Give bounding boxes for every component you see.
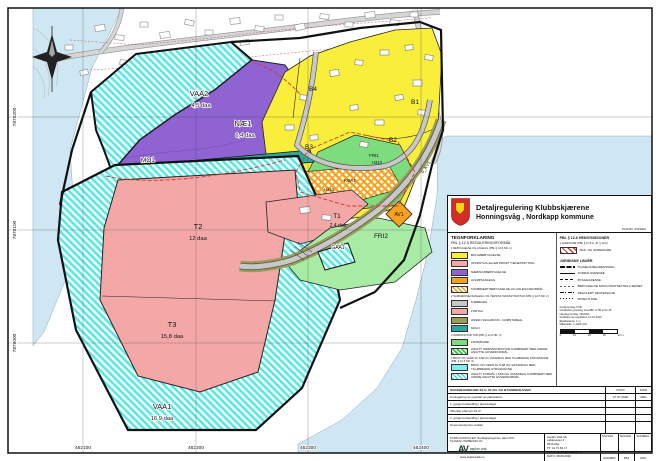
municipal-coat-of-arms (451, 198, 470, 226)
swatch-hazard (560, 247, 577, 254)
legend-col-left: TEGNFORKLARING PBL § 12-5 REGULERINGSFOR… (448, 233, 556, 386)
label-t3: T3 (168, 320, 177, 329)
process-step: 1. gangs behandling i planutvalget (448, 401, 605, 407)
line-centerline (560, 292, 575, 293)
scale-tick: 40 m (618, 334, 624, 337)
label-kba1: KBA1 (344, 178, 356, 183)
line-sightline (560, 298, 575, 299)
legend-item: BRUK OG VERN AV SJØ OG VASSDRAG MED TILH… (451, 364, 553, 371)
scale-bar-labels: 0 10 20 30 40 m (560, 334, 624, 337)
label-b3: B3 (305, 144, 313, 151)
title-block-header: Detaljregulering Klubbskjærene Honningsv… (448, 196, 651, 233)
legend-line-item: PLANENS BEGRENSNING (560, 265, 648, 269)
label-vaa2-area: 4,5 daa (191, 103, 211, 109)
legend-item: BOLIGBEBYGGELSE (451, 252, 553, 259)
legend-line-item: REGULERT SENTERLINJE (560, 291, 648, 295)
legend-group5-title: 5 BRUK OG VERN AV SJØ OG VASSDRAG MED TI… (451, 357, 553, 363)
cell-saksbeh: SAKSBEH ASO (634, 434, 651, 461)
label-nae1-area: 6,4 daa (235, 133, 255, 139)
faresone-title: 1 FARESONE (PBL § 11-8 A, JF. § 12-6) (560, 242, 648, 245)
legend: TEGNFORKLARING PBL § 12-5 REGULERINGSFOR… (448, 233, 651, 387)
legend-item-label: AVLØPSANLEGG (471, 279, 495, 282)
legend-item: KJØREVEG (451, 300, 553, 307)
process-sign (635, 408, 651, 414)
swatch-combined (451, 286, 468, 293)
process-sign: ABG (635, 394, 651, 400)
label-b2: B2 (389, 137, 397, 144)
legend-group3-title: 3 GRØNNSTRUKTUR (PBL § 12-5 NR. 3) (451, 334, 553, 337)
legend-item-label: BRUK OG VERN AV SJØ OG VASSDRAG MED TILH… (471, 364, 553, 370)
label-b4: B4 (309, 86, 317, 93)
label-t1: T1 (333, 213, 341, 220)
legend-item: ANGITT FORMÅL I SJØ OG VASSDRAG KOMBINER… (451, 373, 553, 380)
footer-address: Asplan Viak AS Løkkeveien 4 9510 Alta Tl… (544, 434, 600, 461)
label-t2: T2 (194, 222, 203, 231)
swatch-industry (451, 269, 468, 276)
swatch-sea (451, 364, 468, 371)
title-block-footer: FORSLAGSSTILLER: Nordkappregionen Havn I… (448, 433, 651, 461)
process-row: 1. gangs behandling i planutvalget (448, 400, 651, 407)
swatch-molo (451, 325, 468, 332)
process-date (605, 415, 635, 421)
legend-item: MOLO (451, 325, 553, 332)
process-table: SAKSBEHANDLING IFLG. PLAN- OG BYGNINGSLO… (448, 387, 651, 433)
legend-item-label: FORMÅLSGRENSE (578, 271, 605, 275)
scale-tick: 30 (603, 334, 606, 337)
scale-tick: 20 (588, 334, 591, 337)
process-row: Kommunestyrets vedtak: (448, 421, 651, 433)
legend-item-label: OFFENTLIG ELLER PRIVAT TJENESTEYTING (471, 262, 535, 265)
label-av1: AV1 (394, 212, 403, 218)
legend-item: NÆRINGSBEBYGGELSE (451, 269, 553, 276)
legend-subheading: PBL § 12-5 REGULERINGSFORMÅL (451, 241, 553, 245)
line-plan-boundary (560, 266, 575, 268)
swatch-residential (451, 252, 468, 259)
process-row: Kunngjøring av oppstart av planarbeid 07… (448, 393, 651, 400)
scale-tick: 10 (573, 334, 576, 337)
coord-y3: 7878000 (12, 333, 18, 352)
label-fri1-zone: H310 (372, 160, 383, 165)
label-b1: B1 (411, 99, 419, 106)
legend-heading: TEGNFORKLARING (451, 235, 553, 240)
legend-item-label: KJØREVEG (471, 301, 487, 304)
process-date (605, 401, 635, 407)
legend-item: ANNEN VEGGRUNN - GRØNTAREAL (451, 317, 553, 324)
process-heading: SAKSBEHANDLING IFLG. PLAN- OG BYGNINGSLO… (448, 387, 605, 393)
process-sign (635, 422, 651, 433)
legend-col-right: PBL § 12-6 HENSYNSSONER 1 FARESONE (PBL … (556, 233, 651, 386)
company-website: www.asplanviak.no (460, 455, 542, 459)
hensynssoner-heading: PBL § 12-6 HENSYNSSONER (560, 236, 648, 240)
juridiske-linjer-heading: JURIDISKE LINJER (560, 259, 648, 263)
coord-x2: 462200 (188, 445, 204, 451)
label-t3-area: 15,8 daa (161, 334, 184, 340)
legend-item-label: RAS- OG SKREDFARE (580, 249, 612, 252)
swatch-verge (451, 317, 468, 324)
scale-bar (560, 329, 618, 334)
proposer-name: Nordkappregionen Havn IKS (477, 436, 514, 440)
swatch-sea-combined (451, 373, 468, 380)
legend-item: FRIOMRÅDE (451, 339, 553, 346)
coord-x1: 462100 (75, 445, 91, 451)
legend-item-label: REGULERT SENTERLINJE (578, 291, 615, 295)
legend-item-label: MOLO (471, 327, 480, 330)
legend-item: OFFENTLIG ELLER PRIVAT TJENESTEYTING (451, 260, 553, 267)
line-building-removal (560, 286, 575, 287)
process-sign (635, 415, 651, 421)
legend-item: RAS- OG SKREDFARE (560, 247, 648, 254)
line-building-limit (560, 279, 575, 280)
swatch-sidewalk (451, 308, 468, 315)
basemap-line: Målestokk: 1:1000 (A1) (560, 323, 648, 327)
legend-item-label: ANNEN VEGGRUNN - GRØNTAREAL (471, 319, 523, 322)
label-vaa1-area: 16,9 daa (151, 416, 174, 422)
footer-proposer: FORSLAGSSTILLER: Nordkappregionen Havn I… (448, 434, 544, 461)
swatch-green-combined (451, 348, 468, 355)
cell-label: SAKSNR (602, 435, 617, 438)
process-date (605, 408, 635, 414)
legend-item-label: FRIOMRÅDE (471, 341, 489, 344)
cell-tegnnr: TEGNNR R01 (618, 434, 635, 461)
label-fri2: FRI2 (374, 233, 388, 240)
cell-value: 2019/862 (602, 456, 617, 460)
legend-item-label: ANGITT GRØNNSTRUKTUR KOMBINERT MED ANDRE… (471, 348, 553, 354)
legend-item-label: BEBYGGELSE SOM FORUTSETTES FJERNET (578, 284, 643, 288)
process-step: Kunngjøring av oppstart av planarbeid (448, 394, 605, 400)
line-purpose-boundary (560, 273, 575, 274)
swatch-service (451, 260, 468, 267)
legend-group1-title: 1 BEBYGGELSE OG ANLEGG (PBL § 12-5 NR. 1… (451, 247, 553, 250)
author-label: PLANEN UTARBEIDET AV: (450, 440, 542, 443)
process-col-date: DATO (605, 387, 635, 393)
process-step: 2. gangs behandling i planutvalget (448, 415, 605, 421)
process-col-sign: SIGN (635, 387, 651, 393)
legend-item: KOMBINERT BEBYGGELSE OG ANLEGGSFORMÅL (451, 286, 553, 293)
cell-label: TEGNNR (620, 435, 634, 438)
cell-saksnr: SAKSNR 2019/862 (601, 434, 618, 461)
legend-item-label: PLANENS BEGRENSNING (578, 265, 615, 269)
label-t2-area: 12 daa (189, 236, 208, 242)
coord-y1: 7878200 (12, 107, 18, 126)
legend-line-item: BEBYGGELSE SOM FORUTSETTES FJERNET (560, 284, 648, 288)
label-gaa1: GAA1 (331, 245, 345, 251)
process-row: Offentlig ettersyn fra til (448, 407, 651, 414)
process-date: 07.07.2020 (605, 394, 635, 400)
coord-x4: 462400 (413, 445, 429, 451)
label-fri1: FRI1 (369, 153, 379, 158)
legend-item-label: FRISIKTLINJE (578, 297, 598, 301)
process-header-row: SAKSBEHANDLING IFLG. PLAN- OG BYGNINGSLO… (448, 387, 651, 393)
title-block: Detaljregulering Klubbskjærene Honningsv… (447, 195, 652, 452)
asplan-viak-logo: AV asplan viak (458, 445, 542, 454)
coord-y2: 7878100 (12, 220, 18, 239)
label-mo1: MO1 (141, 157, 156, 165)
legend-group2-title: 2 SAMFERDSELSANLEGG OG TEKNISK INFRASTRU… (451, 295, 553, 298)
legend-item-label: ANGITT FORMÅL I SJØ OG VASSDRAG KOMBINER… (471, 373, 553, 379)
process-row: 2. gangs behandling i planutvalget (448, 414, 651, 421)
label-vaa1: VAA1 (153, 402, 172, 411)
legend-item: AVLØPSANLEGG (451, 277, 553, 284)
legend-line-item: BYGGEGRENSE (560, 278, 648, 282)
scale-tick: 0 (560, 334, 561, 337)
legend-item-label: NÆRINGSBEBYGGELSE (471, 271, 506, 274)
planid: PLANID: 2019002 (451, 226, 648, 232)
cell-value: R01 (620, 456, 634, 460)
legend-line-item: FORMÅLSGRENSE (560, 271, 648, 275)
process-date (605, 422, 635, 433)
label-t1-area: 2,4 daa (330, 223, 347, 229)
footer-cells: SAKSNR 2019/862 TEGNNR R01 SAKSBEH ASO (600, 434, 651, 461)
plan-title: Detaljregulering Klubbskjærene (476, 203, 594, 212)
logo-text: asplan viak (470, 447, 487, 451)
swatch-sewage (451, 277, 468, 284)
legend-item: ANGITT GRØNNSTRUKTUR KOMBINERT MED ANDRE… (451, 348, 553, 355)
plan-subtitle: Honningsvåg , Nordkapp kommune (476, 214, 594, 221)
label-vaa2: VAA2 (190, 89, 209, 98)
label-nae1: NÆ1 (234, 119, 251, 128)
swatch-green-area (451, 339, 468, 346)
basemap-info: Kartgrunnlag: FKB Geodetisk grunnlag: Eu… (560, 306, 648, 337)
coord-x3: 462300 (300, 445, 316, 451)
legend-item-label: KOMBINERT BEBYGGELSE OG ANLEGGSFORMÅL (471, 288, 543, 291)
cell-label: SAKSBEH (636, 435, 650, 438)
logo-mark: AV (458, 445, 468, 454)
process-sign (635, 401, 651, 407)
label-kba1-zone: H310 (324, 187, 335, 192)
cell-value: ASO (636, 456, 650, 460)
process-step: Kommunestyrets vedtak: (448, 422, 605, 433)
legend-item-label: BOLIGBEBYGGELSE (471, 254, 501, 257)
process-step: Offentlig ettersyn fra til (448, 408, 605, 414)
plan-sheet: VAA2 4,5 daa NÆ1 6,4 daa MO1 B4 B1 B2 B3… (0, 0, 660, 461)
legend-line-item: FRISIKTLINJE (560, 297, 648, 301)
legend-item-label: FORTAU (471, 310, 483, 313)
legend-item: FORTAU (451, 308, 553, 315)
legend-item-label: BYGGEGRENSE (578, 278, 601, 282)
plan-date: DATO: 28.09.2020 (547, 455, 598, 459)
swatch-road (451, 300, 468, 307)
